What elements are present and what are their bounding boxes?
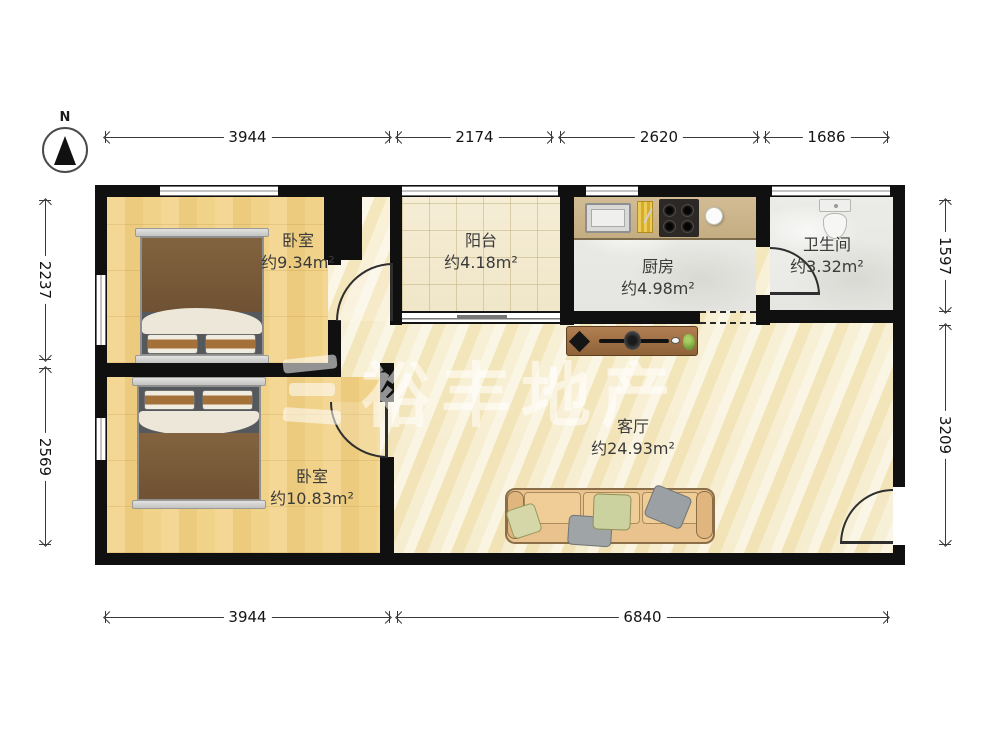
- wall-balcony-kitchen-post: [560, 185, 574, 325]
- tv-stand: [566, 326, 698, 356]
- room-area: 约4.98m²: [598, 278, 718, 300]
- room-area: 约10.83m²: [242, 488, 382, 510]
- toilet-tank: [819, 199, 851, 212]
- bed-blanket: [139, 433, 259, 499]
- label-balcony: 阳台 约4.18m²: [421, 230, 541, 274]
- toilet-button: [834, 204, 838, 208]
- wall-outer-right-lower: [893, 545, 905, 565]
- room-area: 约3.32m²: [767, 256, 887, 278]
- room-name: 卫生间: [767, 234, 887, 256]
- dim-value: 2174: [450, 128, 498, 146]
- dim-value: 3944: [223, 128, 271, 146]
- room-name: 卧室: [238, 230, 358, 252]
- room-area: 约24.93m²: [558, 438, 708, 460]
- dim-value: 3944: [223, 608, 271, 626]
- dim-left-1: 2237: [38, 200, 52, 360]
- cutting-board-icon: [637, 201, 653, 233]
- window-bedroom1-top: [160, 186, 278, 196]
- wall-outer-bottom: [95, 553, 905, 565]
- dim-value: 3209: [936, 411, 954, 459]
- burner: [663, 204, 676, 217]
- wall-bathroom-bottom: [756, 310, 893, 323]
- burner: [681, 204, 694, 217]
- dim-top-2: 2174: [397, 130, 552, 144]
- speaker-icon: [569, 331, 590, 352]
- floor-plan-page: N: [0, 0, 1000, 750]
- label-bedroom2: 卧室 约10.83m²: [242, 466, 382, 510]
- wall-bedroom2-right-upper: [380, 363, 394, 402]
- dim-right-1: 1597: [938, 200, 952, 312]
- dim-left-2: 2569: [38, 368, 52, 545]
- sink-basin: [591, 209, 625, 227]
- wall-bedroom-divider: [95, 363, 341, 377]
- bed-sheet: [139, 411, 259, 435]
- dim-value: 1686: [802, 128, 850, 146]
- window-bedroom2-left: [96, 418, 106, 460]
- sofa-pillow-green: [592, 493, 631, 530]
- bed-pillow: [202, 390, 253, 410]
- compass-circle: [42, 127, 88, 173]
- stove-icon: [659, 199, 699, 237]
- dim-bottom-1: 3944: [105, 610, 390, 624]
- label-living: 客厅 约24.93m²: [558, 416, 708, 460]
- knife-icon: [643, 208, 652, 223]
- kitchen-counter: [574, 197, 756, 240]
- dim-value: 1597: [936, 232, 954, 280]
- room-name: 客厅: [558, 416, 708, 438]
- dim-right-2: 3209: [938, 325, 952, 545]
- room-name: 厨房: [598, 256, 718, 278]
- label-bathroom: 卫生间 约3.32m²: [767, 234, 887, 278]
- window-balcony-top: [402, 186, 558, 196]
- wall-bedroom1-right-lower: [328, 320, 341, 363]
- dim-top-3: 2620: [560, 130, 758, 144]
- sofa: [505, 488, 717, 550]
- bed-pillow: [147, 334, 198, 354]
- dim-value: 2620: [635, 128, 683, 146]
- room-area: 约9.34m²: [238, 252, 358, 274]
- sofa-armrest: [696, 491, 713, 539]
- kitchen-opening-dashed: [700, 311, 756, 324]
- balcony-sliding-window: [402, 311, 560, 324]
- room-name: 卧室: [242, 466, 382, 488]
- bed-pillow: [144, 390, 195, 410]
- dim-value: 2237: [36, 256, 54, 304]
- sliding-sash: [457, 315, 507, 318]
- label-bedroom1: 卧室 约9.34m²: [238, 230, 358, 274]
- plant-icon: [683, 334, 695, 350]
- wall-kitchen-bottom: [560, 311, 700, 324]
- tv-base: [624, 331, 641, 350]
- decor-bowl: [671, 337, 680, 344]
- dim-value: 2569: [36, 432, 54, 480]
- north-arrow-icon: [54, 136, 76, 165]
- label-kitchen: 厨房 约4.98m²: [598, 256, 718, 300]
- dim-top-4: 1686: [765, 130, 888, 144]
- compass-north-label: N: [36, 110, 94, 125]
- dim-top-1: 3944: [105, 130, 390, 144]
- wall-outer-right: [893, 185, 905, 487]
- window-kitchen-top: [586, 186, 638, 196]
- compass: N: [36, 110, 94, 173]
- burner: [663, 220, 676, 233]
- dim-value: 6840: [618, 608, 666, 626]
- window-bedroom1-left: [96, 275, 106, 345]
- burner: [681, 220, 694, 233]
- sink-icon: [585, 203, 631, 233]
- bed-pillow: [205, 334, 256, 354]
- dim-bottom-2: 6840: [397, 610, 888, 624]
- room-name: 阳台: [421, 230, 541, 252]
- wall-bedroom2-right-lower: [380, 457, 394, 553]
- bowl-icon: [705, 207, 723, 225]
- room-area: 约4.18m²: [421, 252, 541, 274]
- window-bathroom-top: [772, 186, 890, 196]
